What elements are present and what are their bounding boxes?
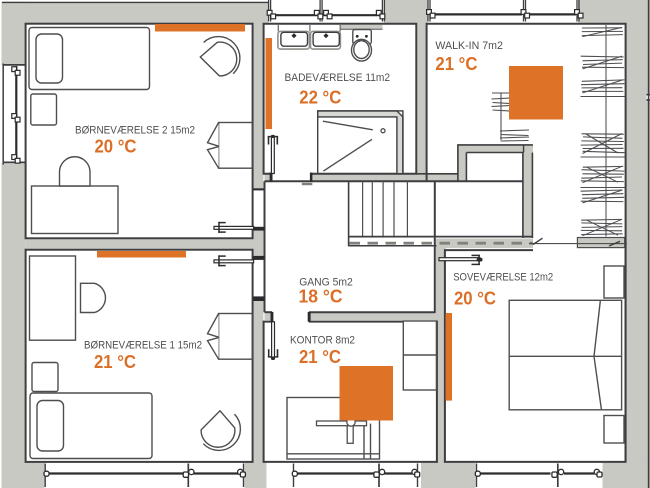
svg-text:SOVEVÆRELSE 12m2: SOVEVÆRELSE 12m2 [453, 271, 553, 283]
svg-text:20 °C: 20 °C [454, 288, 496, 309]
svg-text:18 °C: 18 °C [299, 285, 343, 306]
svg-text:21 °C: 21 °C [299, 346, 341, 367]
svg-text:WALK-IN 7m2: WALK-IN 7m2 [435, 40, 503, 52]
svg-text:BØRNEVÆRELSE 1 15m2: BØRNEVÆRELSE 1 15m2 [84, 340, 202, 352]
svg-text:21 °C: 21 °C [94, 351, 136, 372]
svg-text:BØRNEVÆRELSE 2 15m2: BØRNEVÆRELSE 2 15m2 [75, 125, 195, 137]
svg-text:20 °C: 20 °C [95, 136, 137, 157]
svg-text:21 °C: 21 °C [435, 53, 477, 74]
svg-text:BADEVÆRELSE 11m2: BADEVÆRELSE 11m2 [285, 72, 391, 84]
svg-text:22 °C: 22 °C [299, 87, 341, 108]
svg-text:KONTOR 8m2: KONTOR 8m2 [290, 335, 355, 347]
